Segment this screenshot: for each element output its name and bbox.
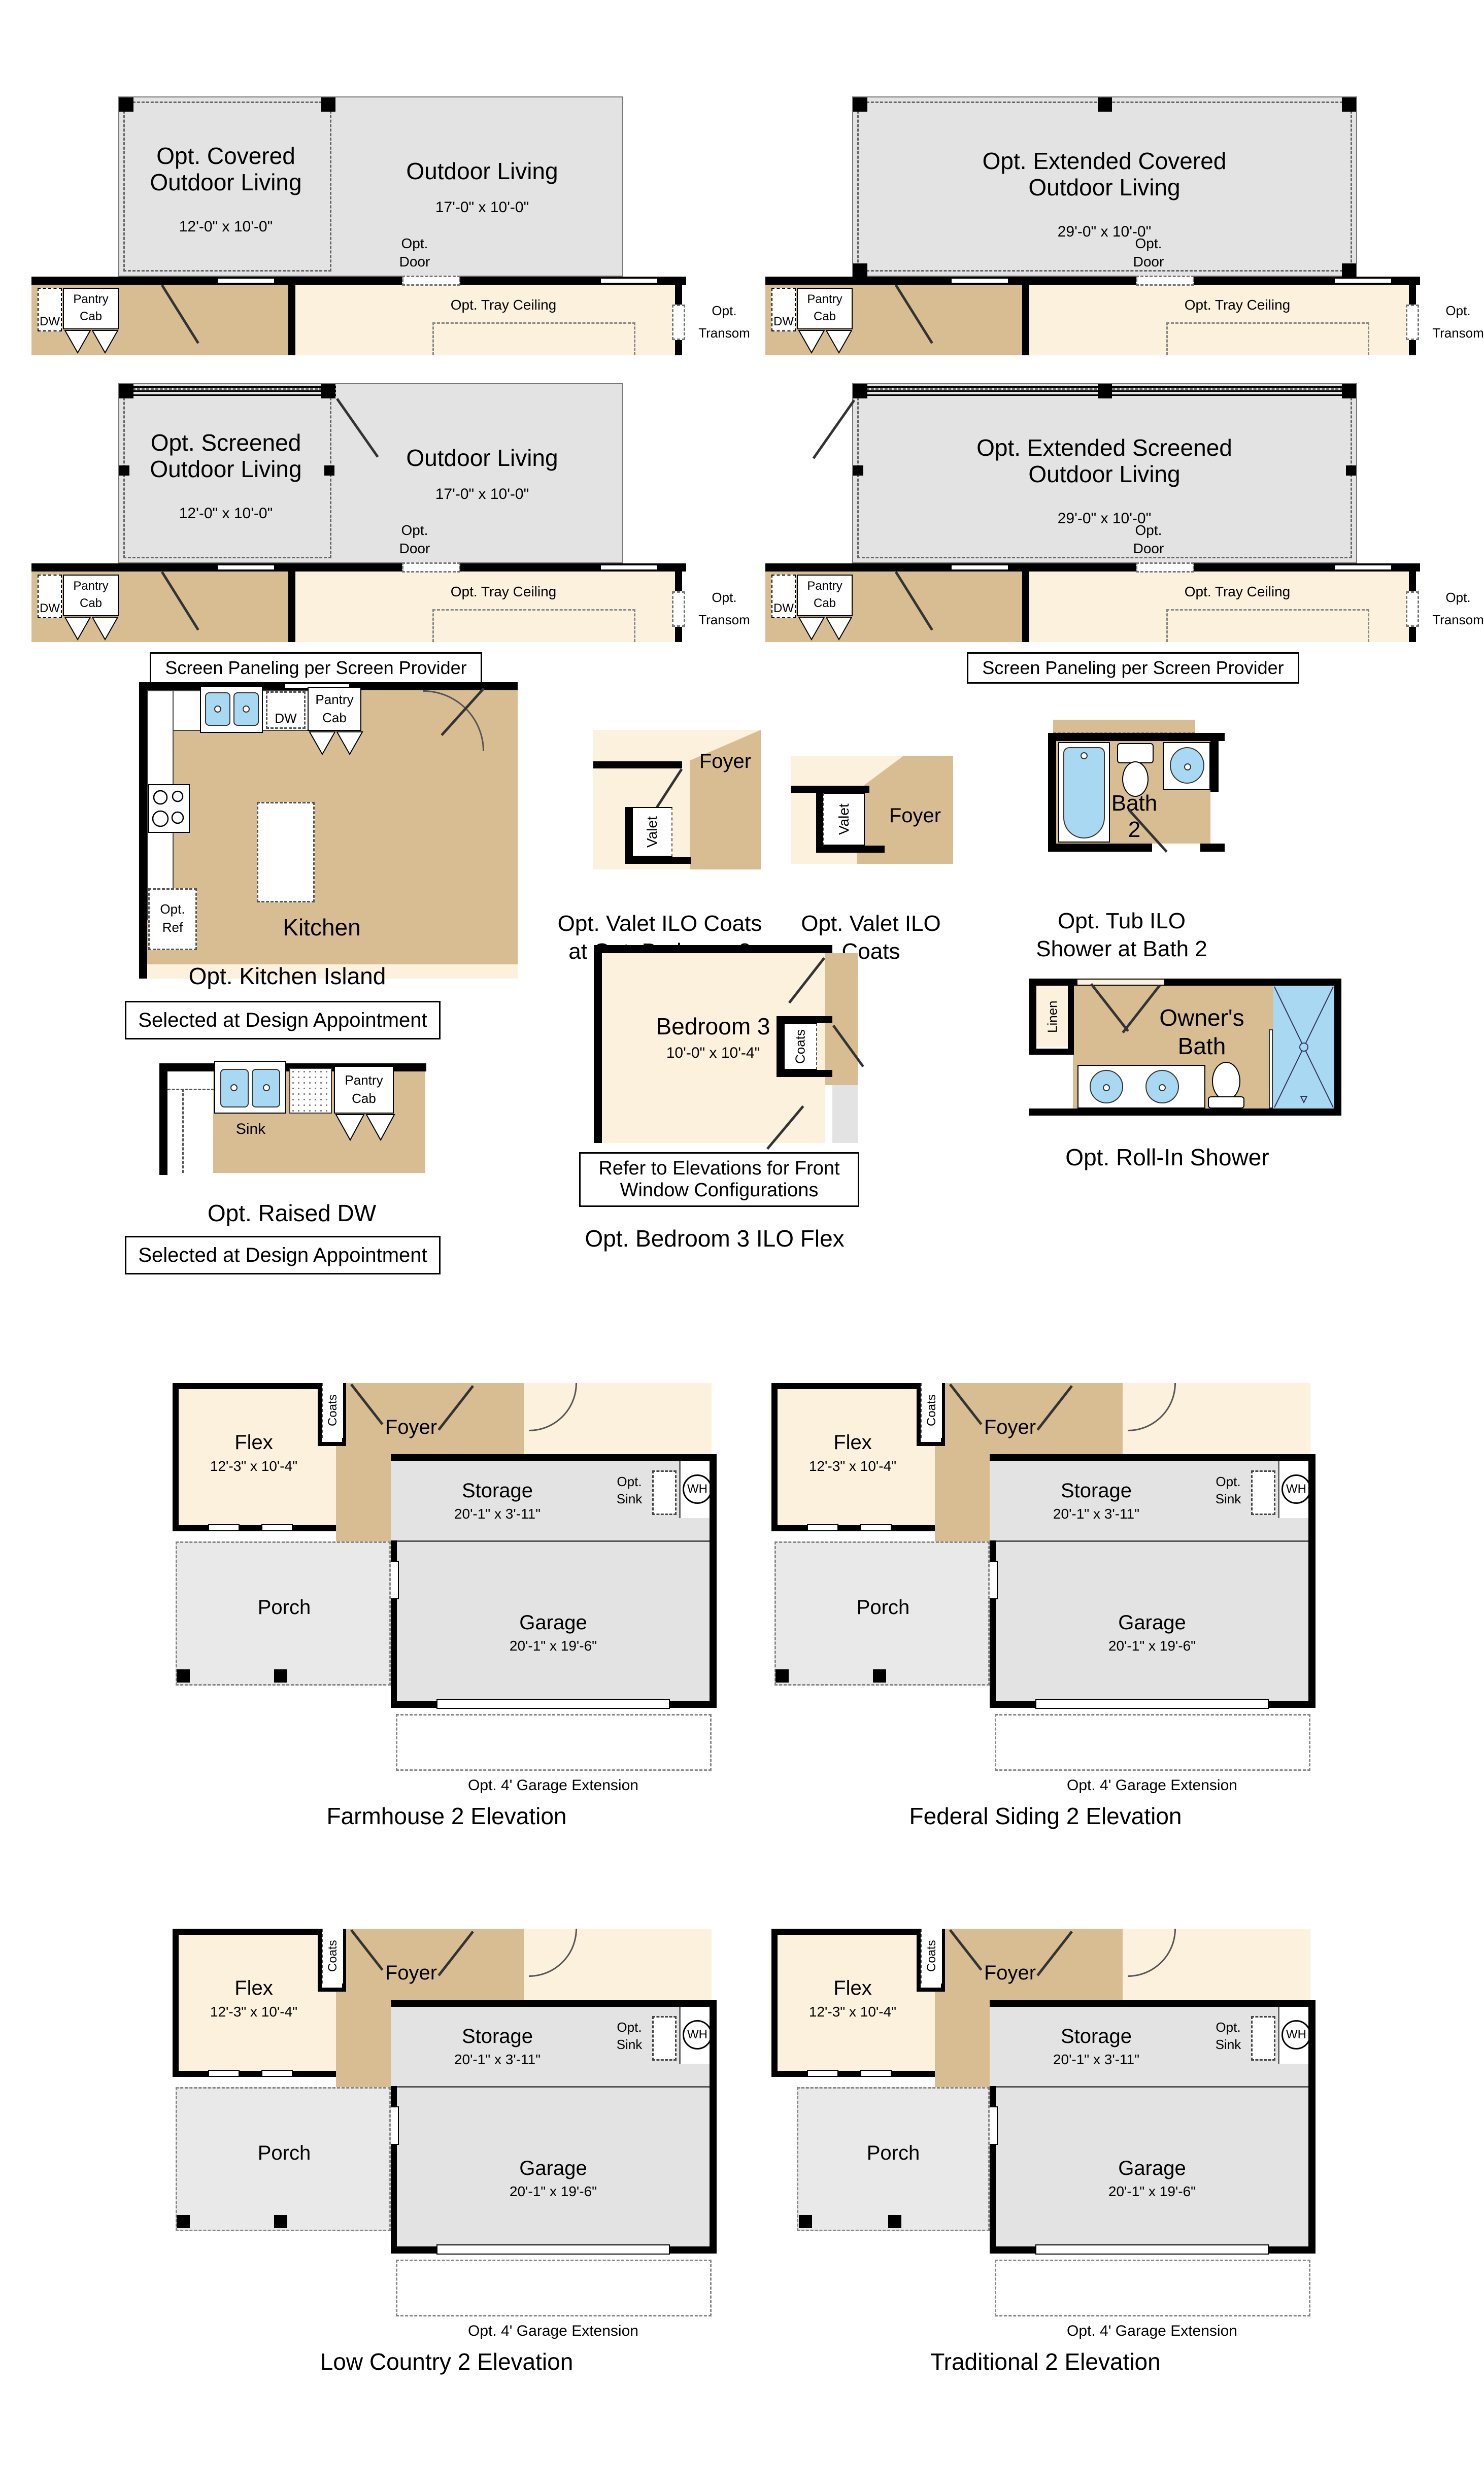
column-post — [1342, 263, 1356, 278]
interior-wall — [1022, 285, 1029, 355]
column-post — [853, 384, 867, 398]
opt-door-label-l1: Opt. — [374, 522, 455, 538]
coats-label: Coats — [322, 1929, 343, 1984]
figure-extended-screened-outdoor-living: Opt. Extended Screened Outdoor Living 29… — [765, 383, 1484, 708]
pantry-cab-box: Pantry Cab — [308, 687, 361, 731]
flex-dims: 12'-3" x 10'-4" — [787, 2004, 919, 2020]
window — [217, 564, 275, 570]
tray-ceiling-label: Opt. Tray Ceiling — [437, 297, 569, 313]
transom-label-l1: Opt. — [691, 304, 757, 318]
coats-label: Coats — [921, 1929, 942, 1984]
left-wall — [1048, 733, 1056, 852]
pantry-label-l1: Pantry — [798, 293, 852, 307]
opt-sink-label-l2: Sink — [1208, 1492, 1249, 1506]
right-wall — [1334, 979, 1341, 1116]
interior-wall — [288, 285, 295, 355]
window-config-note-l2: Window Configurations — [620, 1180, 819, 1201]
water-heater-box: WH — [679, 1461, 714, 1518]
pantry-cab-box: Pantry Cab — [63, 288, 119, 329]
flex-dims: 12'-3" x 10'-4" — [188, 2004, 320, 2020]
cooktop — [148, 784, 190, 833]
garage-dims: 20'-1" x 19'-6" — [477, 2183, 629, 2199]
counter-gap — [167, 1071, 213, 1173]
dishwasher-box: DW — [38, 575, 62, 618]
column-post — [324, 465, 334, 476]
sink-drain — [263, 1084, 270, 1091]
garage-dims: 20'-1" x 19'-6" — [1076, 1638, 1228, 1654]
foyer-label: Foyer — [690, 750, 761, 773]
garage-extension-outline — [396, 1714, 712, 1771]
sink-drain — [230, 1084, 238, 1091]
raised-dishwasher — [289, 1068, 332, 1114]
sink-label: Sink — [215, 1121, 286, 1138]
garage-door — [1035, 2244, 1269, 2255]
elevation-caption: Traditional 2 Elevation — [842, 2349, 1249, 2375]
storage-top-wall — [990, 1454, 1316, 1461]
porch-label: Porch — [817, 2142, 969, 2165]
owners-bath-label-l1: Owner's — [1126, 1005, 1278, 1031]
dishwasher-label: DW — [39, 315, 61, 329]
storage-dims: 20'-1" x 3'-11" — [431, 2052, 563, 2067]
figure-valet-ilo-coats: Valet Foyer — [791, 756, 953, 864]
figure-elevation-federal: Flex 12'-3" x 10'-4" Coats Foyer Storage… — [766, 1373, 1325, 1835]
valet-label: Valet — [633, 808, 671, 856]
water-heater-circle: WH — [683, 1474, 712, 1504]
pantry-doors-icon — [798, 329, 854, 355]
column-post — [119, 384, 133, 398]
sink-drain — [1184, 763, 1191, 770]
tray-ceiling-label: Opt. Tray Ceiling — [1171, 584, 1303, 599]
interior-wall — [288, 572, 295, 642]
opt-door-label-l1: Opt. — [1108, 522, 1189, 538]
figure-raised-dw: Sink Pantry Cab — [159, 1061, 433, 1175]
opt-sink-label-l1: Opt. — [609, 1474, 650, 1489]
pantry-label-l1: Pantry — [64, 293, 118, 307]
toilet-bowl — [1212, 1062, 1240, 1100]
garage-extension-label: Opt. 4' Garage Extension — [401, 1777, 705, 1794]
garage-extension-label: Opt. 4' Garage Extension — [1000, 1777, 1304, 1794]
closet-wall — [625, 807, 632, 863]
pantry-doors-icon — [64, 616, 120, 642]
flex-window — [208, 2070, 240, 2077]
flex-window — [261, 2070, 293, 2077]
bedroom3-room-label: Bedroom 3 — [624, 1014, 802, 1040]
left-wall — [1029, 979, 1036, 1055]
bedroom3-caption: Opt. Bedroom 3 ILO Flex — [562, 1226, 867, 1252]
dishwasher-box: DW — [266, 691, 306, 729]
transom-label-l2: Transom — [1425, 613, 1484, 627]
pantry-label-l2: Cab — [64, 597, 118, 611]
pantry-doors-icon — [64, 329, 120, 355]
opt-door-label-l2: Door — [1108, 541, 1189, 556]
adjacent-room — [1053, 720, 1195, 734]
pantry-label-l2: Cab — [335, 1091, 393, 1106]
owners-bath-label-l2: Bath — [1126, 1033, 1278, 1060]
rear-wall — [31, 277, 686, 285]
garage-label: Garage — [1076, 1611, 1228, 1634]
transom-label-l1: Opt. — [1425, 304, 1484, 318]
bath2-room-label-l1: Bath — [1084, 791, 1185, 816]
closet-wall — [816, 846, 885, 853]
tray-ceiling-outline — [432, 609, 635, 642]
pantry-label-l2: Cab — [64, 310, 118, 324]
dishwasher-label: DW — [39, 602, 61, 616]
opt-door-label-l2: Door — [374, 541, 455, 556]
wh-label: WH — [1286, 2028, 1306, 2042]
figure-valet-at-bedroom3: Valet Foyer — [593, 730, 761, 869]
opt-door-opening — [402, 276, 460, 286]
opt-sink-label-l1: Opt. — [609, 2020, 650, 2035]
garage-dims: 20'-1" x 19'-6" — [1076, 2183, 1228, 2199]
bath2-room-label-l2: 2 — [1084, 817, 1185, 842]
vanity — [1077, 1065, 1205, 1108]
pantry-cab-box: Pantry Cab — [334, 1066, 394, 1114]
kitchen-island-caption: Opt. Kitchen Island — [135, 963, 440, 990]
elevation-caption: Low Country 2 Elevation — [244, 2349, 650, 2375]
top-wall — [594, 945, 832, 953]
interior-wall — [1022, 572, 1029, 642]
column-post — [853, 465, 863, 476]
flex-window — [860, 2070, 892, 2077]
linen-label: Linen — [1038, 989, 1067, 1045]
garage-door — [1035, 1699, 1269, 1709]
window-config-note: Refer to Elevations for Front Window Con… — [579, 1152, 859, 1207]
dishwasher-label: DW — [267, 711, 304, 726]
garage-extension-outline — [995, 1714, 1310, 1771]
bath2-caption-l1: Opt. Tub ILO — [969, 909, 1274, 933]
opt-door-label-l2: Door — [374, 254, 455, 270]
closet-wall — [816, 793, 823, 853]
water-heater-box: WH — [1278, 2007, 1312, 2064]
kitchen-room-label: Kitchen — [246, 915, 398, 941]
coats-label: Coats — [785, 1024, 816, 1069]
storage-label: Storage — [1030, 2025, 1162, 2048]
window — [1334, 564, 1392, 570]
roll-in-shower — [1273, 986, 1334, 1108]
figure-kitchen-island: DW Pantry Cab Opt. Ref Kitchen — [139, 680, 525, 980]
coats-label: Coats — [322, 1383, 343, 1438]
owners-bath-caption: Opt. Roll-In Shower — [1015, 1145, 1320, 1171]
rear-wall — [765, 563, 1420, 572]
extended-screened-dims: 29'-0" x 10'-0" — [950, 510, 1259, 527]
porch-column — [873, 1669, 886, 1683]
screen-paneling-note: Screen Paneling per Screen Provider — [967, 652, 1299, 684]
transom-label-l2: Transom — [691, 613, 757, 627]
garage-right-wall — [1308, 1461, 1316, 1708]
porch-label: Porch — [208, 1596, 360, 1619]
toilet-tank — [1208, 1096, 1244, 1108]
outdoor-living-label: Outdoor Living — [358, 158, 606, 185]
figure-elevation-farmhouse: Flex 12'-3" x 10'-4" Coats Foyer Storage… — [167, 1373, 726, 1835]
window — [951, 278, 1009, 284]
selected-note-text: Selected at Design Appointment — [138, 1244, 427, 1267]
options-sheet: Opt. Covered Outdoor Living 12'-0" x 10'… — [0, 0, 1484, 2486]
storage-label: Storage — [431, 1480, 563, 1502]
screen-paneling-text: Screen Paneling per Screen Provider — [165, 657, 466, 679]
opt-door-opening — [402, 562, 460, 573]
water-heater-circle: WH — [1281, 2020, 1311, 2050]
valet-label: Valet — [824, 794, 864, 845]
pantry-label-l1: Pantry — [335, 1073, 393, 1088]
coats-label: Coats — [921, 1383, 942, 1438]
garage-dims: 20'-1" x 19'-6" — [477, 1638, 629, 1654]
shower-x-icon — [1273, 986, 1334, 1108]
flex-room — [771, 1383, 935, 1531]
garage-door — [436, 1699, 670, 1709]
column-post — [1342, 384, 1356, 398]
kitchen-island — [257, 802, 315, 902]
opt-sink-label-l2: Sink — [609, 1492, 650, 1506]
pantry-label-l1: Pantry — [64, 580, 118, 593]
water-heater-box: WH — [1278, 1461, 1312, 1518]
figure-owners-bath: Linen Owner's Bath — [1029, 979, 1341, 1116]
flex-dims: 12'-3" x 10'-4" — [787, 1458, 919, 1474]
flex-window — [208, 1524, 240, 1531]
closet-area — [832, 1085, 858, 1143]
outdoor-living-area: Opt. Screened Outdoor Living 12'-0" x 10… — [118, 383, 623, 563]
coats-closet: Coats — [917, 1929, 945, 1992]
flex-room — [173, 1929, 336, 2077]
porch-column — [177, 2215, 190, 2228]
bath2-caption-l2: Shower at Bath 2 — [969, 936, 1274, 961]
screened-title: Opt. Screened Outdoor Living — [134, 430, 317, 482]
counter-dash-line — [182, 1089, 184, 1173]
transom-box — [672, 305, 685, 340]
bottom-wall — [1048, 844, 1152, 852]
storage-label: Storage — [1030, 1480, 1162, 1502]
porch-column — [888, 2215, 901, 2228]
pantry-cab-box: Pantry Cab — [797, 288, 853, 329]
storage-dims: 20'-1" x 3'-11" — [431, 1506, 563, 1522]
dishwasher-label: DW — [772, 315, 795, 329]
storage-top-wall — [391, 2000, 717, 2007]
wall — [791, 786, 869, 793]
left-wall — [159, 1063, 167, 1175]
flex-window — [807, 1524, 838, 1531]
garage-extension-outline — [995, 2260, 1310, 2316]
porch-column — [274, 2215, 287, 2228]
flex-label: Flex — [787, 1977, 919, 2000]
figure-tub-bath2: Bath 2 — [1048, 720, 1226, 862]
counter-dash-line — [167, 1089, 214, 1090]
garage-extension-label: Opt. 4' Garage Extension — [1000, 2323, 1304, 2340]
garage-right-wall — [710, 2007, 717, 2254]
coats-closet: Coats — [318, 1383, 346, 1446]
wh-label: WH — [687, 2028, 707, 2042]
screen-paneling-text: Screen Paneling per Screen Provider — [982, 657, 1284, 679]
opt-sink-label-l2: Sink — [1208, 2037, 1249, 2052]
corner-wall — [1200, 844, 1225, 852]
selected-note-box: Selected at Design Appointment — [125, 1236, 441, 1274]
sink-drain — [1103, 1084, 1110, 1091]
porch-label: Porch — [208, 2142, 360, 2165]
closet-wall — [777, 1070, 832, 1077]
valet-box: Valet — [632, 807, 672, 857]
garage-right-wall — [710, 1461, 717, 1708]
water-heater-box: WH — [679, 2007, 714, 2064]
column-post — [1346, 465, 1356, 476]
opt-sink-label-l1: Opt. — [1208, 1474, 1249, 1489]
coats-closet: Coats — [318, 1929, 346, 1992]
linen-wall — [1068, 986, 1074, 1055]
column-post — [853, 97, 867, 112]
closet-wall — [777, 1016, 784, 1077]
outdoor-living-label: Outdoor Living — [358, 445, 606, 472]
opt-sink-box — [1251, 1470, 1275, 1515]
rear-wall — [31, 563, 686, 572]
coats-closet: Coats — [784, 1023, 817, 1070]
garage-label: Garage — [477, 1611, 629, 1634]
top-wall — [1048, 733, 1225, 741]
opt-ref-label-l2: Ref — [150, 920, 195, 935]
closet-wall — [625, 857, 691, 864]
column-post — [853, 263, 867, 278]
transom-box — [1406, 305, 1419, 340]
column-post — [119, 465, 129, 476]
opt-door-opening — [1136, 276, 1194, 286]
extended-covered-dims: 29'-0" x 10'-0" — [950, 223, 1259, 241]
wh-label: WH — [687, 1482, 707, 1496]
foyer-label: Foyer — [877, 804, 953, 827]
garage-right-wall — [1308, 2007, 1316, 2254]
opt-sink-box — [652, 1470, 677, 1515]
elevation-caption: Federal Siding 2 Elevation — [842, 1803, 1249, 1830]
garage-label: Garage — [1076, 2157, 1228, 2180]
flex-label: Flex — [188, 1431, 320, 1454]
figure-elevation-traditional: Flex 12'-3" x 10'-4" Coats Foyer Storage… — [766, 1919, 1325, 2380]
opt-sink-box — [652, 2016, 677, 2061]
outdoor-living-area: Opt. Covered Outdoor Living 12'-0" x 10'… — [118, 96, 623, 277]
left-wall — [139, 682, 147, 979]
window-config-note-l1: Refer to Elevations for Front — [598, 1158, 839, 1180]
raised-dw-caption: Opt. Raised DW — [140, 1200, 444, 1227]
outdoor-living-dims: 17'-0" x 10'-0" — [358, 486, 606, 503]
storage-top-wall — [990, 2000, 1316, 2007]
transom-label-l1: Opt. — [691, 590, 757, 605]
flex-window — [807, 2070, 838, 2077]
wall — [593, 761, 682, 768]
extended-covered-title: Opt. Extended Covered Outdoor Living — [950, 148, 1259, 200]
covered-title: Opt. Covered Outdoor Living — [134, 143, 317, 195]
opt-door-label-l1: Opt. — [1108, 236, 1189, 251]
garage-extension-label: Opt. 4' Garage Extension — [401, 2323, 705, 2340]
transom-label-l1: Opt. — [1425, 590, 1484, 605]
sink-drain — [214, 706, 221, 713]
column-post — [1342, 97, 1356, 112]
column-post — [119, 97, 133, 112]
opt-door-label-l2: Door — [1108, 254, 1189, 270]
pantry-label-l1: Pantry — [309, 692, 360, 707]
sink-drain — [243, 706, 250, 713]
kitchen-sink — [214, 1061, 286, 1114]
transom-label-l2: Transom — [691, 326, 757, 341]
tray-ceiling-label: Opt. Tray Ceiling — [437, 584, 569, 599]
linen-wall — [1036, 1049, 1074, 1055]
closet-wall — [777, 1016, 832, 1023]
tub-drain — [1081, 752, 1088, 759]
transom-box — [1406, 591, 1419, 627]
valet-box: Valet — [823, 793, 865, 846]
screen-paneling-note: Screen Paneling per Screen Provider — [150, 652, 482, 684]
top-wall — [1029, 979, 1341, 986]
column-post — [321, 384, 335, 398]
opt-sink-label-l2: Sink — [609, 2037, 650, 2052]
dishwasher-label: DW — [772, 602, 795, 616]
selected-note-box: Selected at Design Appointment — [125, 1001, 441, 1039]
column-post — [1098, 384, 1112, 398]
coats-closet: Coats — [917, 1383, 945, 1446]
storage-dims: 20'-1" x 3'-11" — [1030, 2052, 1162, 2067]
tray-ceiling-outline — [1166, 322, 1369, 355]
window — [951, 564, 1009, 570]
screen-door-leaf — [813, 399, 855, 459]
pantry-cab-box: Pantry Cab — [63, 575, 119, 616]
flex-room — [173, 1383, 336, 1531]
screened-dims: 12'-0" x 10'-0" — [134, 505, 317, 522]
transom-box — [672, 591, 685, 627]
garage-extension-outline — [396, 2260, 712, 2316]
porch-column — [177, 1669, 190, 1683]
vanity — [1163, 742, 1210, 790]
water-heater-circle: WH — [683, 2020, 712, 2050]
figure-covered-outdoor-living: Opt. Covered Outdoor Living 12'-0" x 10'… — [31, 96, 752, 355]
dishwasher-box: DW — [771, 288, 796, 331]
flex-label: Flex — [188, 1977, 320, 2000]
kitchen-sink — [200, 686, 263, 733]
figure-extended-covered-outdoor-living: Opt. Extended Covered Outdoor Living 29'… — [765, 96, 1484, 355]
garage-label: Garage — [477, 2157, 629, 2180]
figure-bedroom3: Bedroom 3 10'-0" x 10'-4" Coats — [594, 945, 858, 1143]
tray-ceiling-outline — [1166, 609, 1369, 642]
cooktop-burners-icon — [149, 785, 189, 832]
porch-column — [799, 2215, 812, 2228]
pantry-doors-icon — [335, 1114, 396, 1142]
outdoor-living-area: Opt. Extended Screened Outdoor Living 29… — [852, 383, 1357, 563]
tray-ceiling-label: Opt. Tray Ceiling — [1171, 297, 1303, 313]
flex-window — [261, 1524, 293, 1531]
opt-door-opening — [1136, 562, 1194, 573]
covered-dims: 12'-0" x 10'-0" — [134, 218, 317, 236]
opt-sink-box — [1251, 2016, 1275, 2061]
storage-dims: 20'-1" x 3'-11" — [1030, 1506, 1162, 1522]
window — [600, 564, 658, 570]
pantry-label-l1: Pantry — [798, 580, 852, 593]
window — [217, 278, 275, 284]
tray-ceiling-outline — [432, 322, 635, 355]
flex-room — [771, 1929, 935, 2077]
column-post — [1098, 97, 1112, 112]
opt-door-label-l1: Opt. — [374, 236, 455, 251]
dishwasher-box: DW — [771, 575, 796, 618]
sink-drain — [1159, 1084, 1166, 1091]
porch-column — [775, 1669, 789, 1683]
toilet-tank — [1117, 743, 1154, 763]
window — [1334, 278, 1392, 284]
bottom-wall — [1029, 1108, 1341, 1116]
pantry-doors-icon — [309, 731, 364, 756]
opt-ref-label-l1: Opt. — [150, 902, 195, 917]
transom-label-l2: Transom — [1425, 326, 1484, 341]
extended-screened-title: Opt. Extended Screened Outdoor Living — [950, 435, 1259, 487]
outdoor-living-dims: 17'-0" x 10'-0" — [358, 199, 606, 216]
bedroom3-dims: 10'-0" x 10'-4" — [624, 1045, 802, 1062]
opt-ref-box: Opt. Ref — [148, 888, 197, 950]
elevation-caption: Farmhouse 2 Elevation — [244, 1803, 650, 1830]
garage-door — [436, 2244, 670, 2255]
porch-column — [274, 1669, 287, 1683]
flex-dims: 12'-3" x 10'-4" — [188, 1458, 320, 1474]
flex-window — [860, 1524, 892, 1531]
